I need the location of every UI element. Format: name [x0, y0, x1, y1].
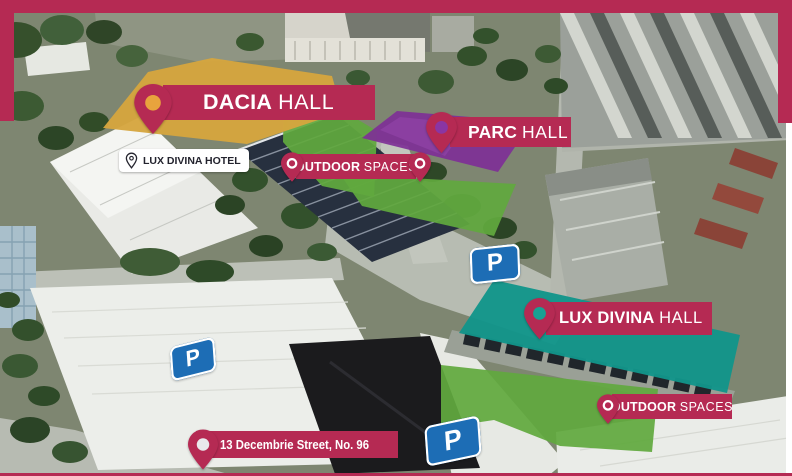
address-pin-icon: [188, 429, 218, 470]
outdoor-spaces-regular: SPACES: [680, 400, 733, 414]
lux-divina-hall-label: LUX DIVINA HALL: [546, 302, 712, 335]
lux-divina-hotel-label: LUX DIVINA HOTEL: [119, 149, 249, 172]
dacia-hall-name-regular: HALL: [278, 90, 334, 115]
lux-divina-hall-name-regular: HALL: [659, 309, 703, 328]
parking-letter: P: [487, 248, 504, 278]
outdoor-spaces-label-2: OUTDOOR SPACES: [612, 394, 732, 419]
address-text: 13 Decembrie Street, No. 96: [220, 437, 369, 452]
parking-letter: P: [185, 343, 201, 373]
address-label: 13 Decembrie Street, No. 96: [196, 431, 398, 458]
frame-right-gutter: [786, 123, 792, 476]
dacia-hall-pin-icon: [134, 84, 172, 134]
frame-right-bar: [778, 0, 792, 123]
lux-divina-hall-pin-icon: [524, 298, 555, 339]
outdoor-spaces-pin-left-icon: [281, 152, 303, 182]
parking-sign: P: [470, 243, 521, 284]
parc-hall-label: PARC HALL: [450, 117, 571, 147]
outdoor-spaces-bold: OUTDOOR: [295, 160, 360, 174]
hotel-name: LUX DIVINA HOTEL: [143, 155, 241, 167]
parc-hall-name-bold: PARC: [468, 122, 517, 143]
dacia-hall-label: DACIA HALL: [163, 85, 375, 120]
parc-hall-pin-icon: [426, 112, 457, 153]
outdoor-spaces-pin-right-icon: [409, 152, 431, 182]
parc-hall-name-regular: HALL: [522, 122, 568, 143]
venue-map: P P P DACIA HALL PARC HALL LUX DIVINA HA…: [0, 0, 792, 476]
outdoor-spaces-label-1: OUTDOOR SPACES: [296, 154, 416, 179]
parking-letter: P: [443, 423, 463, 458]
lux-divina-hall-name-bold: LUX DIVINA: [559, 309, 655, 328]
outdoor-spaces-bold: OUTDOOR: [611, 400, 676, 414]
dacia-hall-name-bold: DACIA: [203, 90, 272, 115]
hotel-pin-icon: [125, 152, 138, 169]
outdoor-spaces-2-pin-icon: [597, 393, 619, 425]
frame-top-bar: [0, 0, 792, 13]
frame-left-bar: [0, 0, 14, 121]
